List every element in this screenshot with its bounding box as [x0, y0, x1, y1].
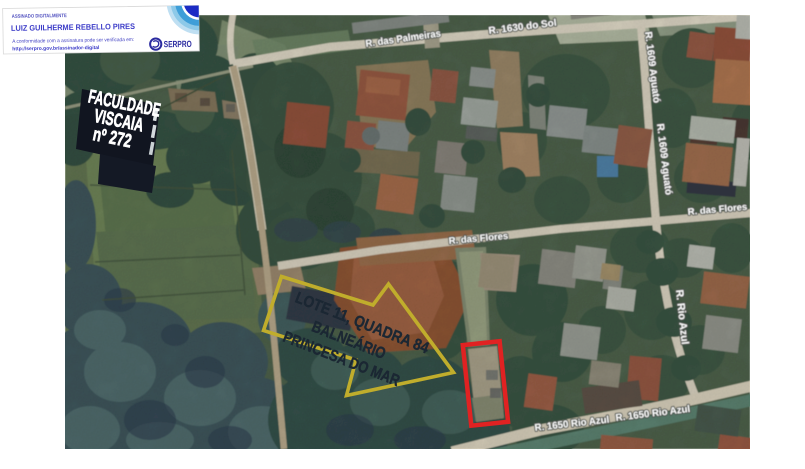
svg-text:SERPRO: SERPRO [164, 39, 192, 49]
svg-text:ASSINADO DIGITALMENTE: ASSINADO DIGITALMENTE [12, 13, 68, 20]
